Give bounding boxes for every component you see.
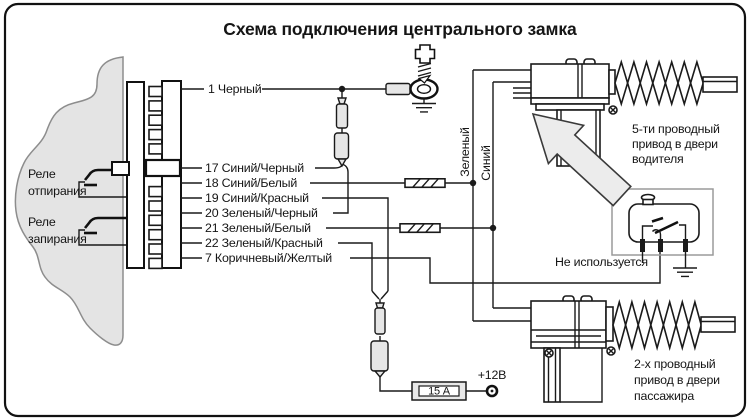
passenger-actuator-rod xyxy=(701,317,735,332)
wire-label-7-brown-yellow: 7 Коричневый/Желтый xyxy=(205,251,332,265)
fuse-label: 15 А xyxy=(428,386,451,398)
vertical-wire-label-blue: Синий xyxy=(479,145,493,181)
wire-label-20-green-black: 20 Зеленый/Черный xyxy=(205,206,318,220)
unused-label: Не используется xyxy=(555,255,648,269)
wire-label-1-black: 1 Черный xyxy=(208,82,262,96)
power-terminal xyxy=(487,386,497,396)
wire-label-18-blue-white: 18 Синий/Белый xyxy=(205,176,297,190)
fuse-15a: 15 А xyxy=(412,382,466,400)
diagram-title: Схема подключения центрального замка xyxy=(223,19,577,39)
junction-dot-blue xyxy=(490,225,496,231)
unlock-relay-label-line2: отпирания xyxy=(28,184,86,198)
passenger-caption-line2: привод в двери xyxy=(634,373,720,387)
splice-wire18 xyxy=(405,179,445,188)
passenger-caption-line1: 2-х проводный xyxy=(634,357,716,371)
unlock-relay-label-line1: Реле xyxy=(28,167,56,181)
driver-actuator-rod xyxy=(703,77,737,92)
wire-label-22-green-red: 22 Зеленый/Красный xyxy=(205,236,323,250)
central-lock-wiring-diagram: Схема подключения центрального замка Рел… xyxy=(0,0,750,420)
vertical-wire-label-green: Зеленый xyxy=(458,127,472,177)
splice-wire21 xyxy=(400,224,440,233)
passenger-caption-line3: пассажира xyxy=(634,389,694,403)
power-label: +12В xyxy=(478,368,506,382)
driver-caption-line3: водителя xyxy=(632,152,684,166)
lock-relay-label-line1: Реле xyxy=(28,215,56,229)
wire-label-21-green-white: 21 Зеленый/Белый xyxy=(205,221,311,235)
diagram-canvas: Схема подключения центрального замка Рел… xyxy=(0,0,750,420)
wire-label-19-blue-red: 19 Синий/Красный xyxy=(205,191,309,205)
driver-caption-line1: 5-ти проводный xyxy=(632,122,720,136)
driver-caption-line2: привод в двери xyxy=(632,137,718,151)
wire-label-17-blue-black: 17 Синий/Черный xyxy=(205,161,304,175)
junction-dot-ground xyxy=(339,86,345,92)
connector-key-tab xyxy=(146,160,180,176)
connector-latch xyxy=(112,162,129,175)
junction-dot-green xyxy=(470,180,476,186)
lock-relay-label-line2: запирания xyxy=(28,232,87,246)
